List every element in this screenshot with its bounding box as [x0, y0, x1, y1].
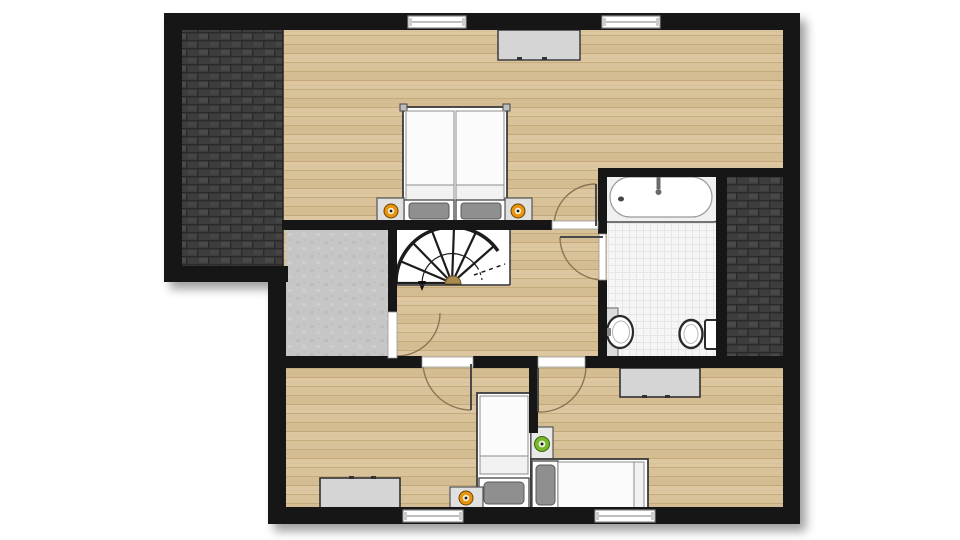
- window-bottom-left: [403, 510, 463, 522]
- dresser-foot: [517, 57, 522, 60]
- blanket-fold-right: [456, 185, 504, 200]
- bed-post: [400, 104, 407, 111]
- tub-drain-icon: [618, 197, 624, 202]
- duvet-left: [406, 111, 454, 185]
- threshold-bathroom: [599, 234, 606, 280]
- roof-area-top-left: [182, 30, 283, 268]
- floor-plan-canvas: [0, 0, 960, 540]
- threshold-bedroom-3: [538, 357, 585, 367]
- dresser-foot: [642, 395, 647, 398]
- nightstand-right: [505, 198, 532, 223]
- wall-top: [164, 13, 800, 30]
- threshold-bedroom-2: [422, 357, 473, 367]
- blanket-fold: [634, 462, 644, 508]
- dresser-foot: [542, 57, 547, 60]
- window-top-left: [408, 16, 466, 28]
- bathtub: [604, 172, 718, 222]
- blanket-fold-left: [406, 185, 454, 200]
- wall-left-lower: [268, 266, 286, 524]
- bathtub-basin: [610, 177, 712, 217]
- wall-right: [783, 13, 800, 524]
- double-bed: [400, 104, 510, 222]
- duvet: [558, 462, 634, 508]
- dresser-bottom-left: [320, 476, 400, 509]
- duvet-right: [456, 111, 504, 185]
- wall-bathroom-left-b: [598, 280, 607, 368]
- wall-mid-a: [286, 356, 422, 368]
- wall-mid-c: [585, 356, 783, 368]
- pillow: [409, 203, 449, 219]
- nightstand-bottom-left: [450, 487, 483, 509]
- pillow: [536, 465, 555, 505]
- dresser-foot: [665, 395, 670, 398]
- window-top-right: [602, 16, 660, 28]
- roof-area-right: [727, 177, 783, 360]
- wall-left-upper: [164, 13, 182, 282]
- wall-bathroom-top: [598, 168, 783, 177]
- wall-mid-b: [473, 356, 538, 368]
- threshold-master-bedroom: [552, 221, 598, 229]
- door-leaf-storage-closed: [388, 312, 397, 358]
- wall-bottom: [268, 507, 800, 524]
- wall-bathroom-left-a: [598, 168, 607, 234]
- window-bottom-right: [595, 510, 655, 522]
- dresser-bottom-right: [620, 368, 700, 398]
- building: [164, 13, 800, 524]
- single-bed-vertical: [477, 393, 531, 510]
- bed-post: [503, 104, 510, 111]
- wall-bathroom-right: [716, 177, 727, 362]
- duvet: [480, 396, 528, 456]
- wall-bedroom-divider: [529, 362, 538, 433]
- storage-room-floor: [286, 230, 388, 358]
- wall-bedroom: [282, 220, 552, 230]
- nightstand-left: [377, 198, 404, 223]
- pillow: [461, 203, 501, 219]
- dresser-top: [498, 30, 580, 60]
- dresser-foot: [349, 476, 354, 479]
- dresser-foot: [371, 476, 376, 479]
- blanket-fold: [480, 456, 528, 474]
- single-bed-horizontal: [531, 459, 648, 511]
- pillow: [484, 482, 524, 504]
- toilet: [680, 320, 719, 349]
- wall-storage-right: [388, 224, 397, 312]
